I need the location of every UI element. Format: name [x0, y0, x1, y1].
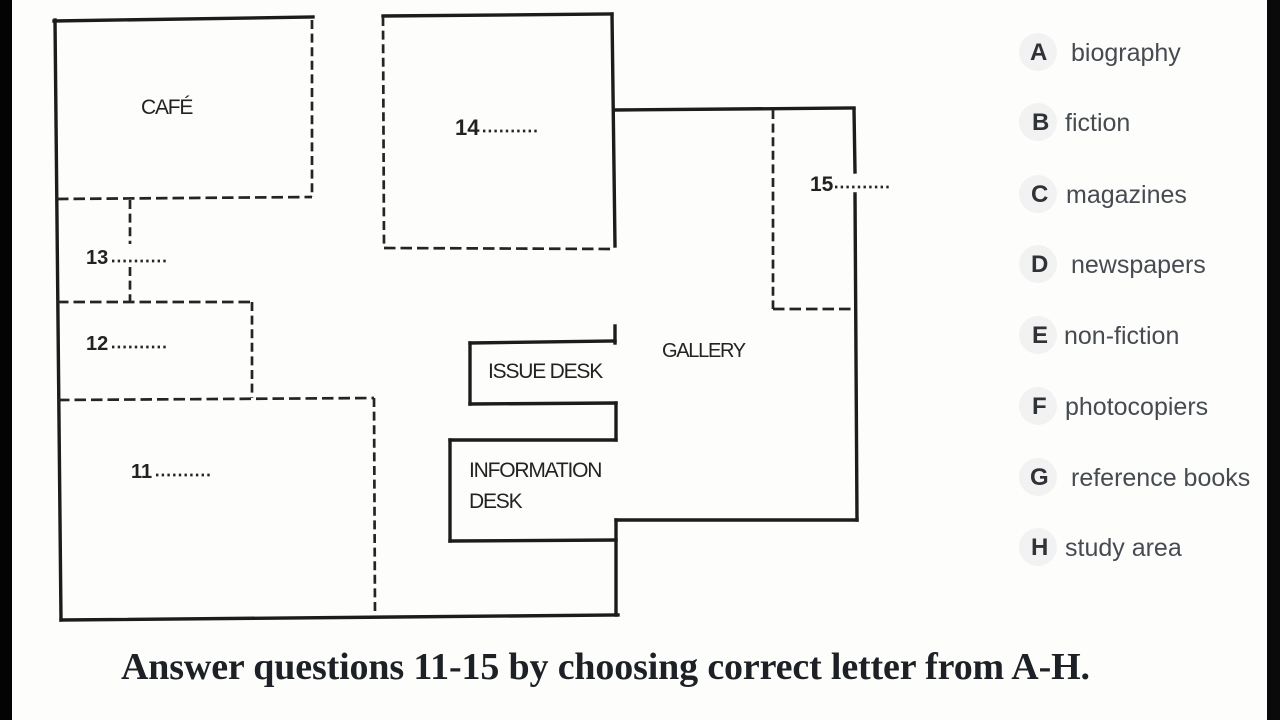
svg-text:fiction: fiction: [1065, 109, 1130, 137]
svg-text:H: H: [1031, 534, 1048, 561]
svg-text:ISSUE DESK: ISSUE DESK: [488, 360, 603, 383]
svg-text:E: E: [1032, 322, 1048, 349]
svg-text:non-fiction: non-fiction: [1064, 322, 1179, 350]
svg-text:magazines: magazines: [1066, 181, 1187, 209]
svg-text:study area: study area: [1065, 534, 1182, 562]
svg-text:B: B: [1032, 109, 1049, 136]
svg-text:CAFÉ: CAFÉ: [141, 96, 193, 119]
svg-text:photocopiers: photocopiers: [1065, 393, 1208, 421]
svg-text:F: F: [1032, 393, 1047, 420]
svg-text:biography: biography: [1071, 39, 1181, 67]
svg-text:11: 11: [131, 461, 152, 483]
svg-text:reference books: reference books: [1071, 464, 1250, 492]
svg-text:C: C: [1031, 181, 1048, 208]
svg-text:INFORMATION: INFORMATION: [469, 459, 601, 482]
svg-text:12: 12: [86, 333, 108, 355]
svg-text:newspapers: newspapers: [1071, 251, 1206, 279]
svg-text:15: 15: [810, 173, 834, 196]
svg-text:D: D: [1031, 251, 1048, 278]
svg-text:DESK: DESK: [469, 490, 523, 513]
svg-text:14: 14: [455, 115, 480, 140]
svg-text:13: 13: [86, 247, 108, 269]
svg-text:Answer questions 11-15 by choo: Answer questions 11-15 by choosing corre…: [121, 646, 1090, 688]
svg-text:A: A: [1030, 39, 1047, 66]
svg-text:G: G: [1030, 464, 1049, 491]
svg-text:GALLERY: GALLERY: [662, 340, 746, 362]
